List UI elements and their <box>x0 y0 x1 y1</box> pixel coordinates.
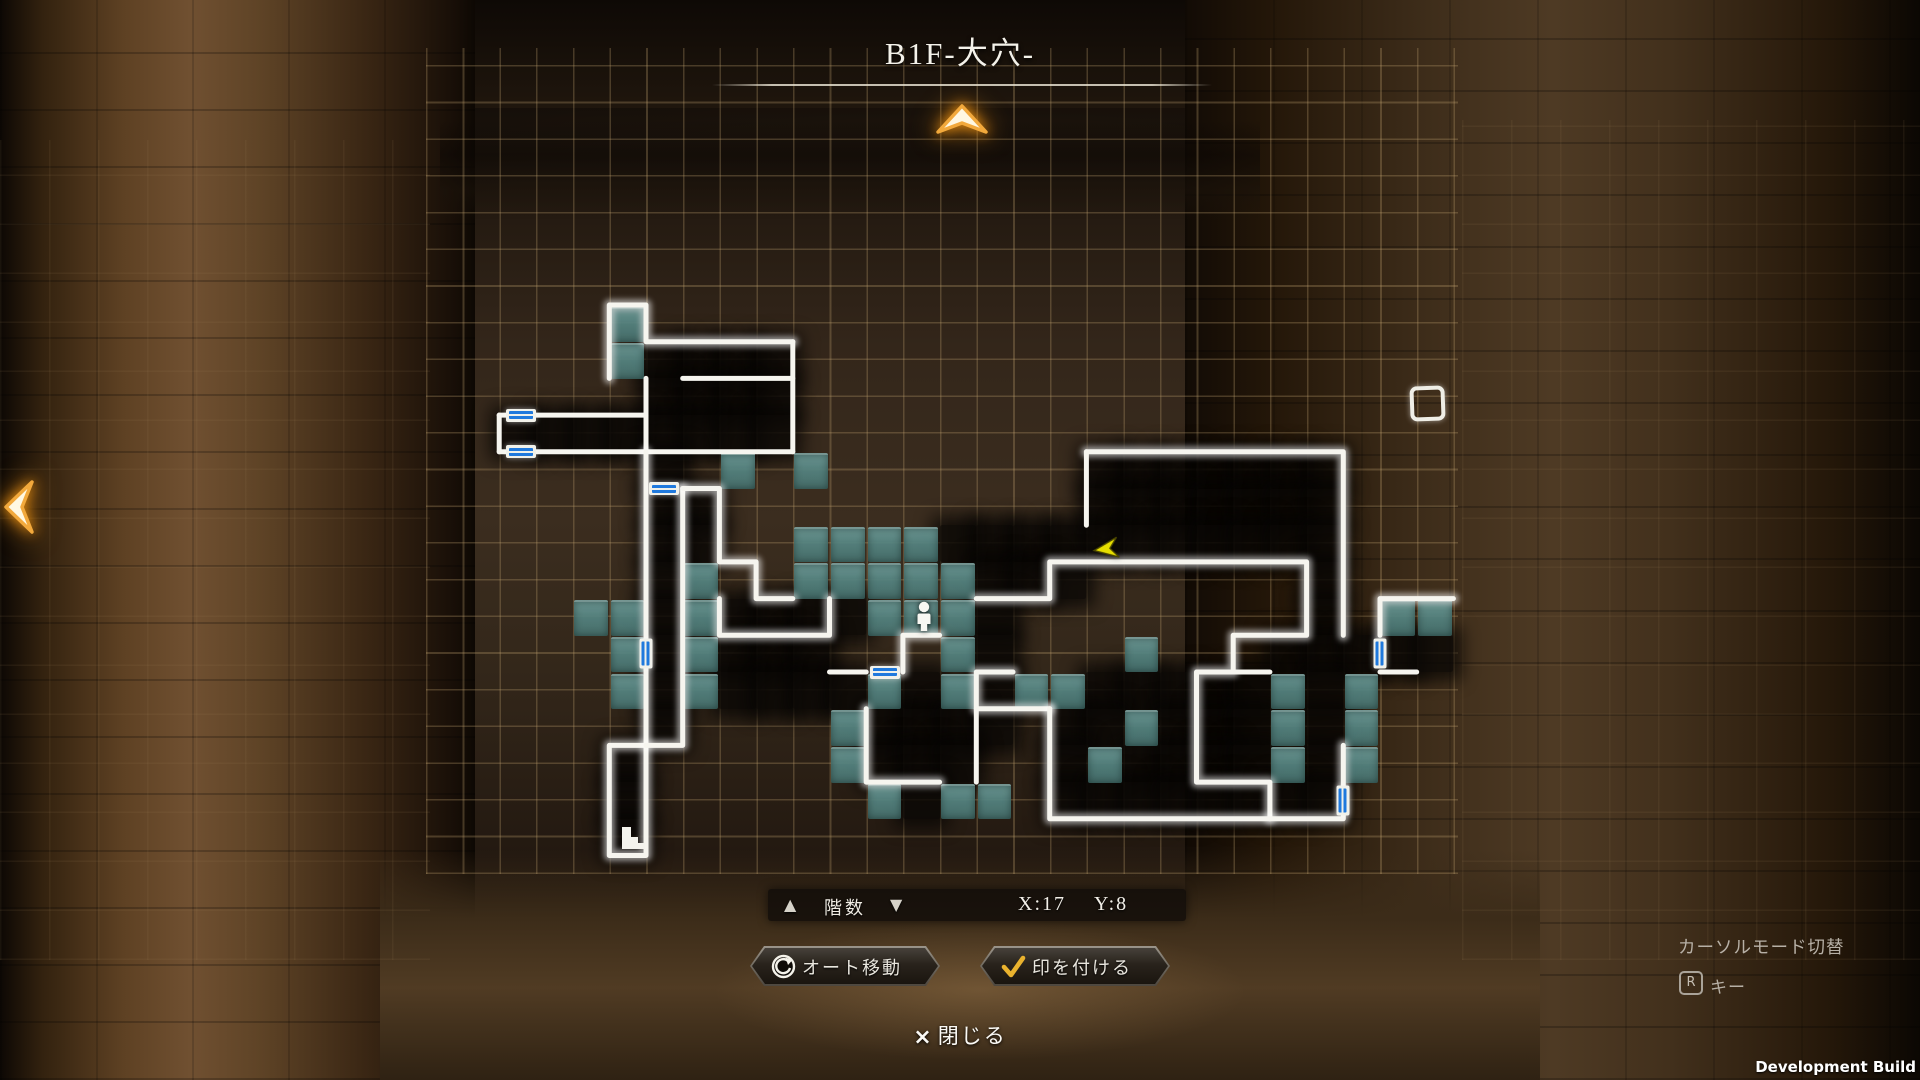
cursor-y-coordinate: Y:8 <box>1094 893 1128 916</box>
map-grid-overlay <box>426 48 1458 874</box>
key-suffix-label: キー <box>1710 973 1746 998</box>
auto-move-button[interactable]: オート移動 <box>750 946 940 986</box>
auto-move-icon <box>770 953 797 980</box>
page-left-chevron-icon[interactable] <box>0 478 36 536</box>
floor-title: B1F-大穴- <box>0 28 1920 73</box>
close-x-icon: × <box>913 1025 931 1050</box>
place-mark-button[interactable]: 印を付ける <box>980 946 1170 986</box>
place-mark-label: 印を付ける <box>1032 954 1132 980</box>
wall-grid-left <box>0 140 430 960</box>
r-key-badge: R <box>1679 971 1703 995</box>
map-marker-square <box>1409 386 1445 422</box>
dungeon-map-screen: B1F-大穴- ▲ 階数 ▼ X:17 Y:8 オート移動 印を付ける ×閉じる <box>0 0 1920 1080</box>
checkmark-icon <box>1000 953 1027 980</box>
page-up-chevron-icon[interactable] <box>932 98 992 138</box>
floor-down-button[interactable]: ▼ <box>890 895 902 914</box>
floor-label: 階数 <box>824 894 866 920</box>
development-build-label: Development Build <box>1755 1058 1916 1076</box>
cursor-mode-hint-text: カーソルモード切替 <box>1678 934 1918 959</box>
close-button[interactable]: ×閉じる <box>0 1020 1920 1050</box>
stairs-icon <box>619 821 649 851</box>
player-position-icon <box>913 601 935 632</box>
floor-up-button[interactable]: ▲ <box>784 895 796 914</box>
wall-grid-right <box>1462 120 1920 960</box>
cursor-mode-hint: カーソルモード切替 R キー <box>1678 934 1918 995</box>
cursor-arrow-icon <box>1088 534 1121 564</box>
auto-move-label: オート移動 <box>802 954 902 980</box>
floor-selector-bar: ▲ 階数 ▼ X:17 Y:8 <box>768 889 1186 921</box>
close-label: 閉じる <box>938 1024 1007 1048</box>
cursor-x-coordinate: X:17 <box>1018 893 1066 916</box>
title-divider <box>712 84 1212 86</box>
